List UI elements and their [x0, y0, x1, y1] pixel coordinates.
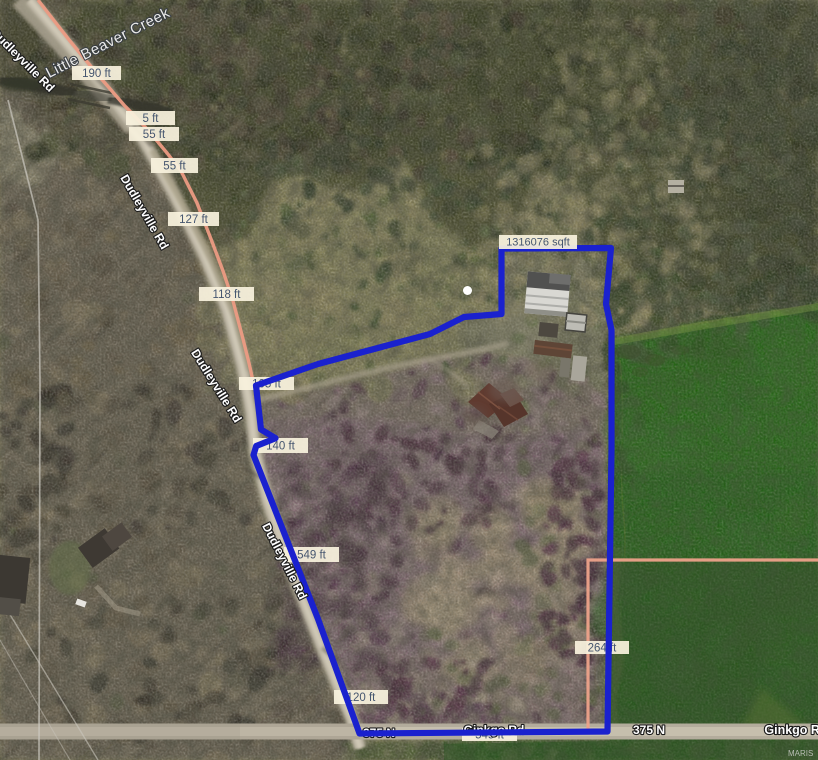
svg-text:127 ft: 127 ft [179, 214, 209, 226]
svg-text:Ginkgo Rd: Ginkgo Rd [764, 723, 818, 737]
svg-text:55 ft: 55 ft [143, 129, 166, 141]
svg-text:118 ft: 118 ft [213, 289, 242, 301]
svg-text:1316076 sqft: 1316076 sqft [506, 237, 570, 249]
svg-text:MARIS: MARIS [788, 749, 813, 758]
svg-text:5 ft: 5 ft [143, 113, 160, 125]
svg-text:190 ft: 190 ft [82, 68, 112, 80]
svg-text:264 ft: 264 ft [588, 642, 618, 654]
svg-text:375 N: 375 N [633, 723, 665, 737]
svg-text:549 ft: 549 ft [297, 549, 327, 561]
svg-text:55 ft: 55 ft [163, 160, 186, 172]
